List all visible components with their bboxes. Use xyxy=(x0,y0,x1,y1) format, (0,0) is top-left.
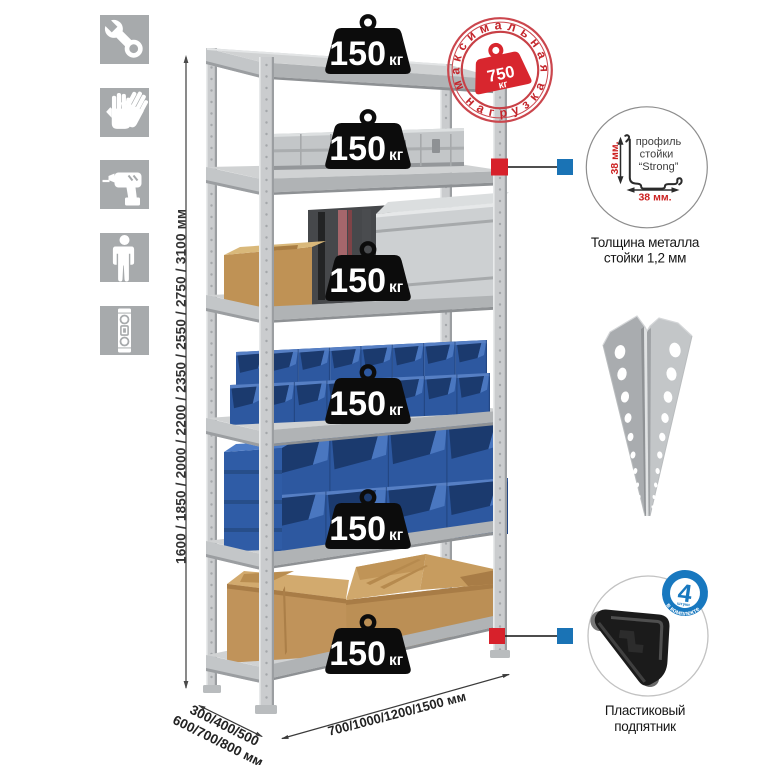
svg-text:150: 150 xyxy=(329,510,386,548)
svg-text:Толщина металла: Толщина металла xyxy=(591,235,700,250)
svg-text:стойки: стойки xyxy=(640,149,674,161)
svg-text:кг: кг xyxy=(389,52,404,69)
svg-text:“Strong”: “Strong” xyxy=(639,161,679,173)
svg-text:подпятник: подпятник xyxy=(614,719,676,734)
svg-text:150: 150 xyxy=(329,130,386,168)
svg-text:стойки 1,2 мм: стойки 1,2 мм xyxy=(604,251,686,266)
svg-text:150: 150 xyxy=(329,262,386,300)
svg-text:профиль: профиль xyxy=(636,136,682,148)
svg-text:кг: кг xyxy=(389,147,404,164)
svg-text:кг: кг xyxy=(389,279,404,296)
svg-text:150: 150 xyxy=(329,635,386,673)
svg-text:кг: кг xyxy=(389,527,404,544)
svg-text:кг: кг xyxy=(389,652,404,669)
svg-text:кг: кг xyxy=(389,402,404,419)
svg-text:1600 / 1850 / 2000 / 2200 / 23: 1600 / 1850 / 2000 / 2200 / 2350 / 2550 … xyxy=(174,209,189,564)
svg-text:Пластиковый: Пластиковый xyxy=(605,703,685,718)
svg-text:38 мм.: 38 мм. xyxy=(609,141,621,174)
svg-text:38 мм.: 38 мм. xyxy=(638,192,671,204)
svg-text:150: 150 xyxy=(329,35,386,73)
svg-text:150: 150 xyxy=(329,385,386,423)
